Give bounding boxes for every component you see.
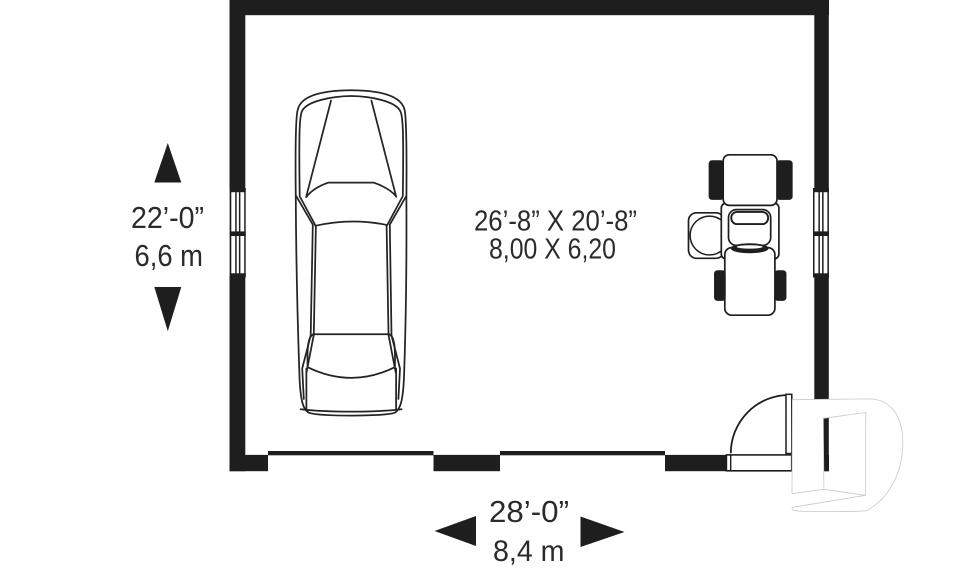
svg-text:6,6 m: 6,6 m — [135, 238, 204, 273]
svg-text:8,00 X 6,20: 8,00 X 6,20 — [489, 233, 616, 265]
svg-text:22’-0”: 22’-0” — [131, 200, 204, 235]
svg-text:28’-0”: 28’-0” — [489, 494, 569, 529]
svg-text:8,4 m: 8,4 m — [493, 535, 565, 568]
